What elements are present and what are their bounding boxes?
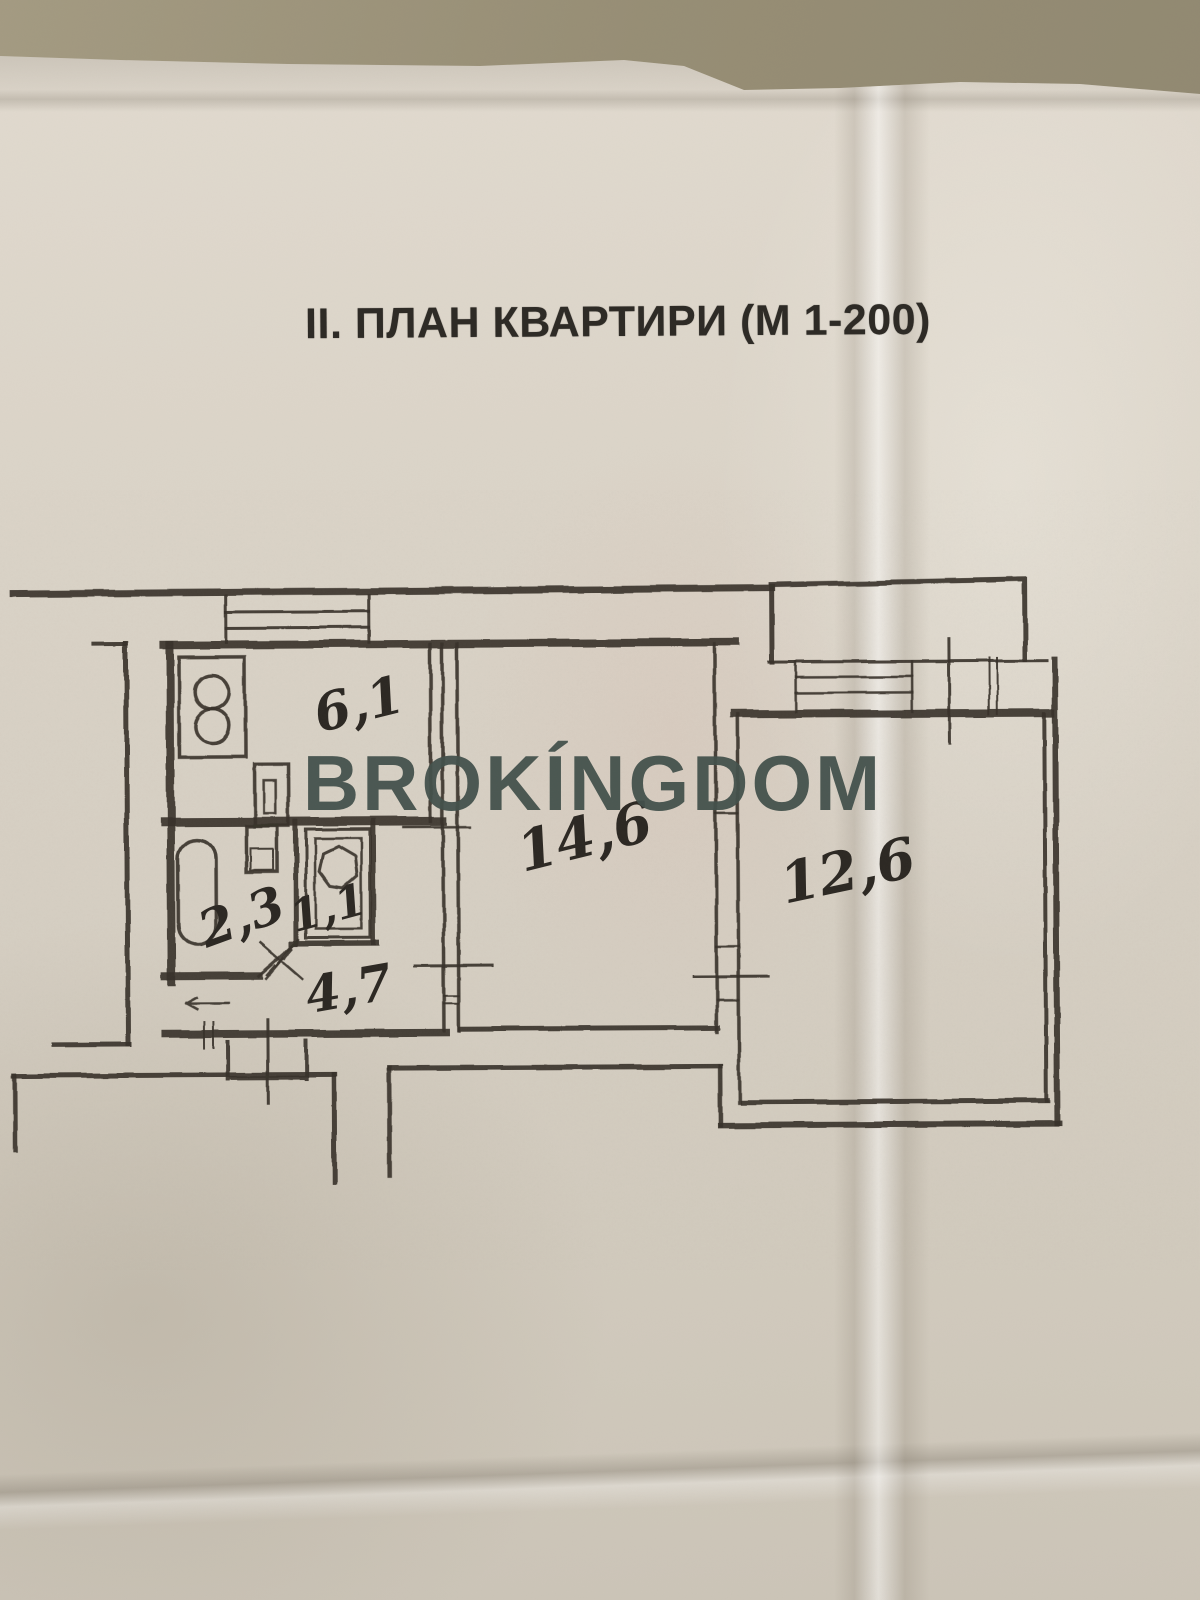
watermark: BROKÍNGDOM: [303, 738, 883, 829]
photo-of-floor-plan-document: { "document": { "title": "II. ПЛАН КВАРТ…: [0, 0, 1200, 1600]
photocopy-speckle: [0, 555, 1090, 1205]
